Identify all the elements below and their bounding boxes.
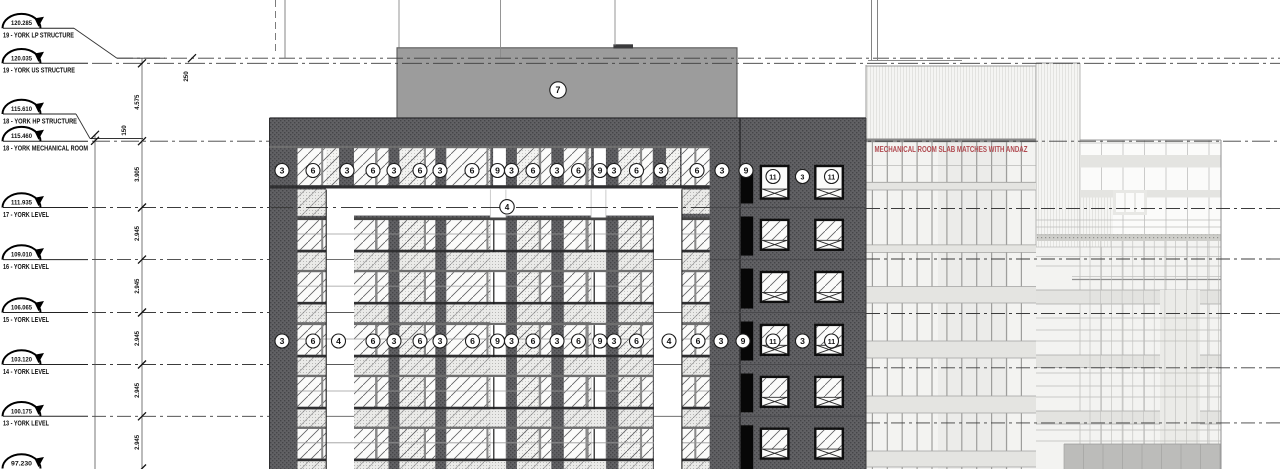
svg-text:9: 9 <box>744 166 749 176</box>
svg-text:3: 3 <box>345 166 350 176</box>
svg-text:13 - YORK LEVEL: 13 - YORK LEVEL <box>3 421 50 428</box>
svg-text:7: 7 <box>556 85 561 95</box>
svg-text:18 - YORK HP STRUCTURE: 18 - YORK HP STRUCTURE <box>3 118 77 125</box>
svg-text:6: 6 <box>531 166 536 176</box>
svg-text:6: 6 <box>311 336 316 346</box>
svg-text:111.935: 111.935 <box>11 200 33 207</box>
svg-text:97.230: 97.230 <box>11 461 33 468</box>
svg-text:4.575: 4.575 <box>135 94 141 110</box>
svg-text:3: 3 <box>280 336 285 346</box>
svg-text:120.035: 120.035 <box>11 55 33 62</box>
svg-text:115.610: 115.610 <box>11 106 33 113</box>
svg-text:16 - YORK LEVEL: 16 - YORK LEVEL <box>3 264 50 271</box>
svg-text:4: 4 <box>667 336 672 346</box>
svg-text:19 - YORK US STRUCTURE: 19 - YORK US STRUCTURE <box>3 68 75 75</box>
svg-text:2.945: 2.945 <box>135 330 141 346</box>
svg-text:3: 3 <box>800 336 805 346</box>
svg-text:11: 11 <box>769 175 777 182</box>
svg-text:3: 3 <box>720 166 725 176</box>
svg-text:3: 3 <box>801 175 805 182</box>
svg-text:3: 3 <box>280 166 285 176</box>
svg-text:6: 6 <box>418 336 423 346</box>
svg-text:9: 9 <box>495 166 500 176</box>
svg-text:11: 11 <box>828 339 836 346</box>
svg-text:2.945: 2.945 <box>135 278 141 294</box>
svg-text:6: 6 <box>371 336 376 346</box>
svg-text:3: 3 <box>612 336 617 346</box>
svg-text:11: 11 <box>828 175 836 182</box>
svg-text:2.945: 2.945 <box>135 434 141 450</box>
svg-text:3: 3 <box>392 336 397 346</box>
svg-text:6: 6 <box>470 166 475 176</box>
svg-text:106.065: 106.065 <box>11 305 33 312</box>
svg-text:2.945: 2.945 <box>135 382 141 398</box>
svg-text:103.120: 103.120 <box>11 357 33 364</box>
svg-text:150: 150 <box>121 125 128 136</box>
svg-text:3: 3 <box>392 166 397 176</box>
svg-text:MECHANICAL ROOM SLAB MATCHES W: MECHANICAL ROOM SLAB MATCHES WITH ANDAZ <box>875 145 1028 154</box>
svg-text:3: 3 <box>509 166 514 176</box>
svg-text:3: 3 <box>438 166 443 176</box>
svg-text:109.010: 109.010 <box>11 252 33 259</box>
svg-text:3.905: 3.905 <box>135 166 141 182</box>
svg-text:3: 3 <box>612 166 617 176</box>
svg-text:6: 6 <box>634 166 639 176</box>
svg-text:6: 6 <box>311 166 316 176</box>
svg-text:14 - YORK LEVEL: 14 - YORK LEVEL <box>3 369 50 376</box>
svg-text:120.285: 120.285 <box>11 20 33 27</box>
svg-text:3: 3 <box>659 166 664 176</box>
svg-text:9: 9 <box>598 336 603 346</box>
svg-text:6: 6 <box>470 336 475 346</box>
svg-text:100.175: 100.175 <box>11 408 33 415</box>
svg-text:18 - YORK MECHANICAL ROOM: 18 - YORK MECHANICAL ROOM <box>3 146 88 153</box>
svg-text:4: 4 <box>505 203 510 212</box>
svg-text:17 - YORK LEVEL: 17 - YORK LEVEL <box>3 212 50 219</box>
svg-text:3: 3 <box>509 336 514 346</box>
svg-text:2.945: 2.945 <box>135 225 141 241</box>
svg-text:6: 6 <box>531 336 536 346</box>
svg-text:6: 6 <box>576 166 581 176</box>
svg-text:6: 6 <box>634 336 639 346</box>
svg-text:6: 6 <box>418 166 423 176</box>
svg-text:9: 9 <box>741 336 746 346</box>
svg-text:250: 250 <box>183 71 190 82</box>
svg-text:15 - YORK LEVEL: 15 - YORK LEVEL <box>3 317 50 324</box>
svg-text:9: 9 <box>598 166 603 176</box>
svg-text:115.460: 115.460 <box>11 133 33 140</box>
svg-text:11: 11 <box>769 339 777 346</box>
svg-text:3: 3 <box>719 336 724 346</box>
svg-text:19 - YORK LP STRUCTURE: 19 - YORK LP STRUCTURE <box>3 33 74 40</box>
svg-text:4: 4 <box>336 336 341 346</box>
svg-text:3: 3 <box>555 336 560 346</box>
svg-text:3: 3 <box>438 336 443 346</box>
svg-text:6: 6 <box>695 166 700 176</box>
svg-text:6: 6 <box>576 336 581 346</box>
svg-text:6: 6 <box>696 336 701 346</box>
svg-text:9: 9 <box>495 336 500 346</box>
svg-text:3: 3 <box>555 166 560 176</box>
svg-text:6: 6 <box>371 166 376 176</box>
